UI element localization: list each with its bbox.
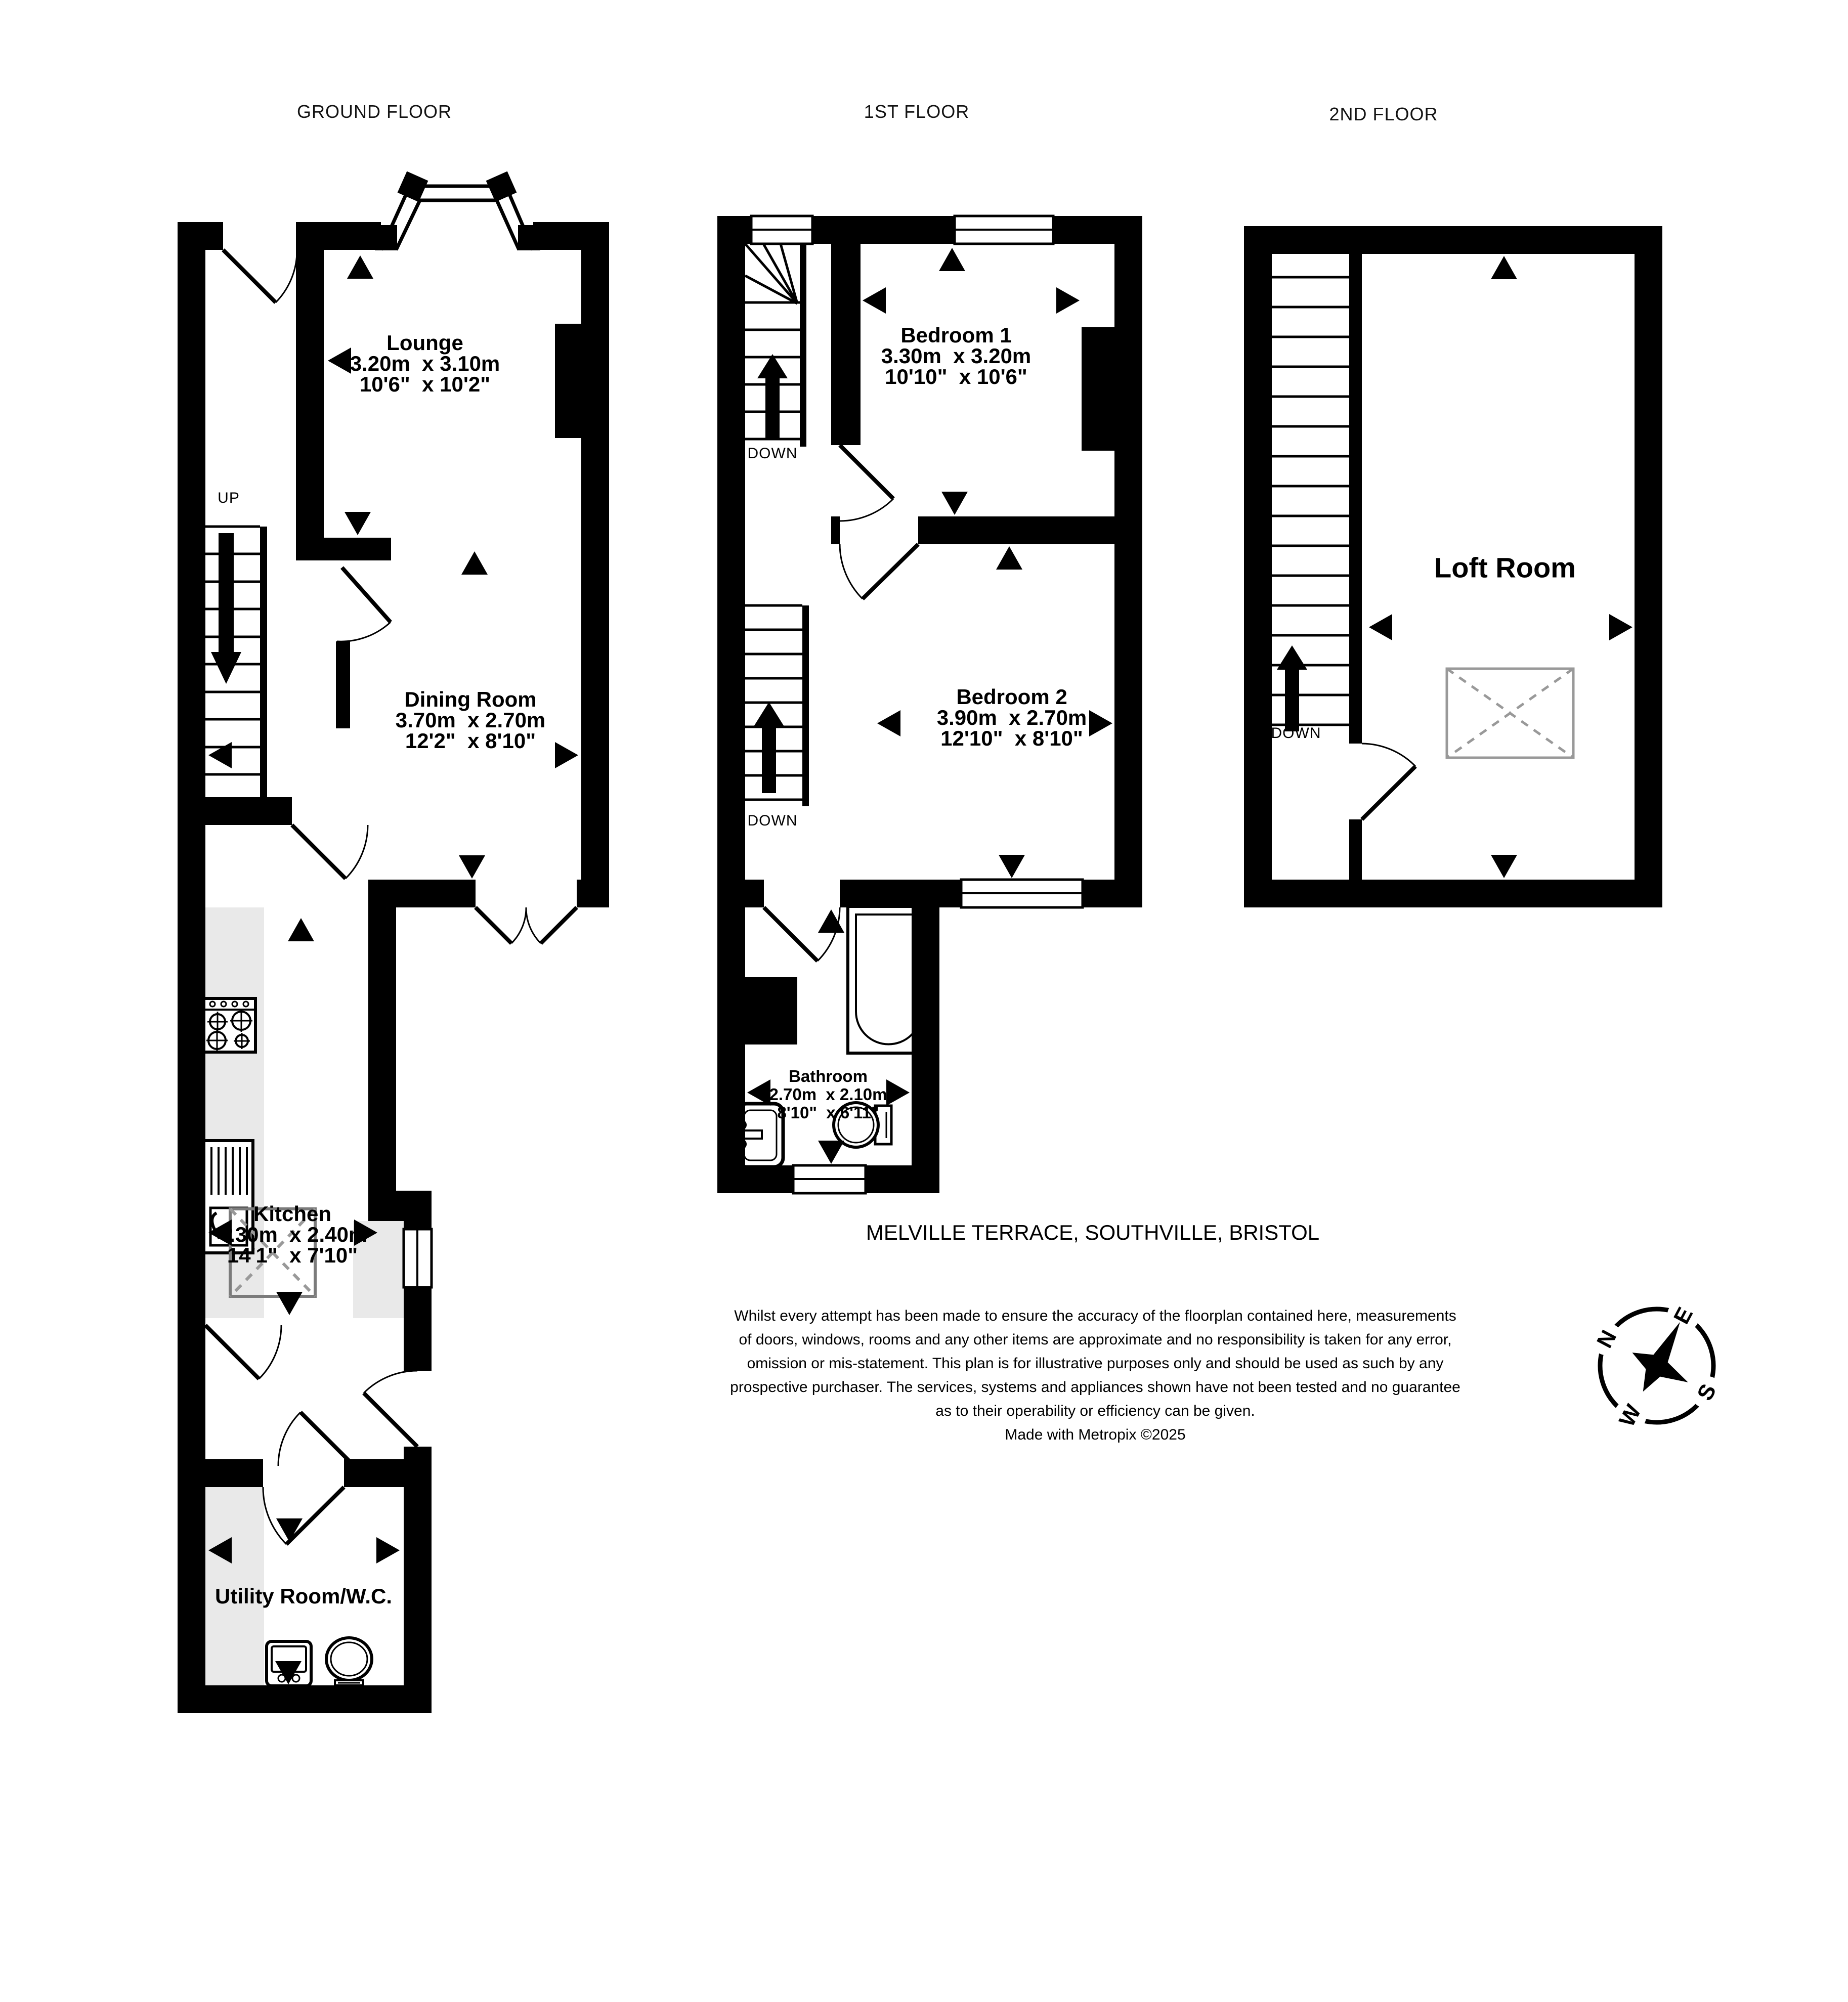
bedroom2-imperial: 12'10" x 8'10"	[940, 726, 1083, 751]
ground-floor-title: GROUND FLOOR	[297, 101, 452, 122]
bathroom-imperial: 8'10" x 6'11"	[777, 1103, 879, 1122]
stairs-up-label: UP	[218, 490, 240, 507]
wall	[1244, 226, 1272, 907]
disclaimer-line: omission or mis-statement. This plan is …	[653, 1352, 1538, 1375]
bathroom-metric: 2.70m x 2.10m	[769, 1085, 887, 1104]
wall	[260, 527, 267, 802]
wall	[205, 797, 292, 825]
wall	[368, 880, 476, 907]
chimney-breast	[555, 324, 586, 438]
loft-name: Loft Room	[1434, 551, 1576, 584]
first-floor-title: 1ST FLOOR	[864, 101, 969, 122]
floorplan-drawing: N E S W	[0, 0, 1848, 2002]
wall	[1244, 880, 1662, 907]
dining-imperial: 12'2" x 8'10"	[405, 729, 536, 753]
wall	[831, 516, 840, 544]
wall	[800, 229, 806, 447]
wall	[717, 880, 764, 907]
property-address: MELVILLE TERRACE, SOUTHVILLE, BRISTOL	[866, 1221, 1319, 1245]
lounge-imperial: 10'6" x 10'2"	[360, 372, 490, 397]
bay-window-icon	[375, 171, 540, 250]
wall	[866, 1165, 939, 1193]
wall	[178, 222, 223, 250]
wall	[368, 907, 396, 1191]
wall	[717, 1165, 793, 1193]
chimney-breast	[1082, 327, 1114, 451]
wall	[918, 516, 1142, 544]
wall	[745, 977, 797, 1044]
wall	[368, 1191, 432, 1221]
wall	[336, 641, 350, 728]
wall	[344, 1459, 432, 1487]
wall	[1114, 216, 1142, 907]
wall	[717, 216, 751, 244]
wall	[912, 907, 939, 1193]
wall	[178, 222, 205, 1713]
disclaimer: Whilst every attempt has been made to en…	[653, 1304, 1538, 1447]
kitchen-imperial: 14'1" x 7'10"	[227, 1243, 358, 1268]
second-floor-title: 2ND FLOOR	[1329, 104, 1438, 125]
second-stairs-icon	[1272, 247, 1349, 725]
wall	[840, 880, 961, 907]
wall	[812, 216, 955, 244]
bathroom-name: Bathroom	[789, 1067, 868, 1086]
stairs-down-label: DOWN	[1271, 725, 1321, 742]
wall	[296, 538, 391, 560]
hob-icon	[204, 998, 255, 1052]
wall	[296, 222, 381, 250]
wall	[577, 880, 609, 907]
wall	[1244, 226, 1662, 254]
wall	[178, 1459, 263, 1487]
utility-name: Utility Room/W.C.	[215, 1584, 392, 1608]
wall	[1349, 254, 1362, 744]
wall	[296, 250, 324, 538]
wall	[717, 216, 745, 1193]
wall	[1635, 226, 1662, 907]
bedroom1-imperial: 10'10" x 10'6"	[885, 365, 1027, 389]
stairs-down-label: DOWN	[748, 812, 798, 830]
disclaimer-line: prospective purchaser. The services, sys…	[653, 1375, 1538, 1399]
stairs-down-label: DOWN	[748, 445, 798, 462]
wall	[831, 244, 861, 445]
compass-rose-icon: N E S W	[1558, 1267, 1755, 1464]
disclaimer-line: Whilst every attempt has been made to en…	[653, 1304, 1538, 1328]
wall	[1083, 880, 1114, 907]
wall	[802, 605, 809, 806]
floorplan-page: N E S W GROUND FLOOR 1ST FLOOR 2ND FLOOR…	[0, 0, 1848, 2002]
wall	[178, 1685, 432, 1713]
wall	[1349, 819, 1362, 880]
disclaimer-line: as to their operability or efficiency ca…	[653, 1399, 1538, 1423]
disclaimer-line: of doors, windows, rooms and any other i…	[653, 1328, 1538, 1352]
disclaimer-credit: Made with Metropix ©2025	[653, 1423, 1538, 1447]
loft-restricted-area	[1447, 669, 1573, 758]
toilet-icon	[326, 1638, 372, 1685]
